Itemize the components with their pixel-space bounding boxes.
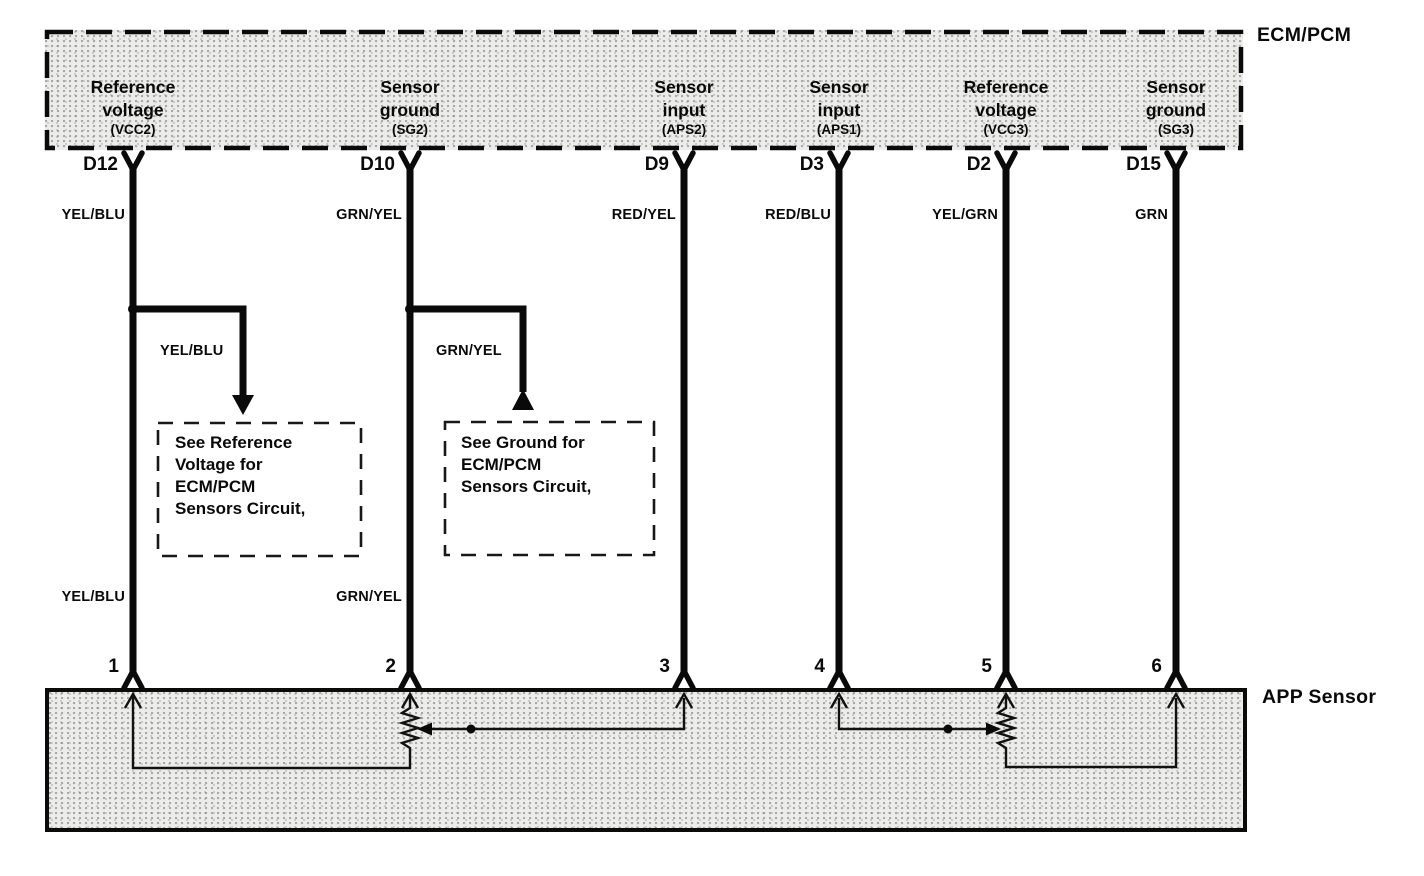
wire-color-label: GRN/YEL [436,343,502,359]
wire-column-1 [124,153,142,708]
pin-label-d9: D9 [572,154,669,176]
connector-fork-icon [1167,671,1185,688]
app-pin-number: 4 [775,656,825,678]
wire-column-3 [675,153,693,708]
circuit-line [1006,698,1176,767]
wire-column-6 [1167,153,1185,708]
app-sensor-label: APP Sensor [1262,686,1376,709]
wiring-diagram: ECM/PCM APP Sensor Reference voltage (VC… [0,0,1424,876]
terminal-aps2: Sensor input (APS2) [599,76,769,137]
connector-fork-icon [997,671,1015,688]
wire-color-label: YEL/BLU [15,207,125,223]
arrow-up-icon [512,389,534,410]
app-pin-number: 1 [69,656,119,678]
callout-line: ECM/PCM [461,454,591,476]
wiper-line [839,698,987,729]
terminal-aps1: Sensor input (APS1) [754,76,924,137]
callout-line: ECM/PCM [175,476,305,498]
wiper-line [421,698,684,729]
wiper-dot [467,725,476,734]
wire-color-label: GRN/YEL [292,207,402,223]
terminal-line: Reference [921,76,1091,99]
terminal-sub: (VCC2) [48,122,218,137]
pin-label-d10: D10 [298,154,395,176]
potentiometer-left [133,696,684,768]
pin-label-d2: D2 [894,154,991,176]
callout-ground: See Ground for ECM/PCM Sensors Circuit, [461,432,591,498]
app-pin-number: 2 [346,656,396,678]
app-pin-number: 3 [620,656,670,678]
wire-column-2 [401,153,419,708]
terminal-sub: (VCC3) [921,122,1091,137]
terminal-line: Sensor [754,76,924,99]
wire-color-label: YEL/BLU [15,589,125,605]
connector-fork-icon [401,671,419,688]
callout-line: Voltage for [175,454,305,476]
circuit-line [133,696,410,768]
wiper-dot [944,725,953,734]
app-pin-number: 5 [942,656,992,678]
ecm-pcm-label: ECM/PCM [1257,24,1351,47]
callout-line: See Reference [175,432,305,454]
wire-column-4 [830,153,848,708]
terminal-sub: (APS2) [599,122,769,137]
terminal-line: input [599,99,769,122]
terminal-line: voltage [48,99,218,122]
terminal-sub: (SG3) [1091,122,1261,137]
terminal-sub: (APS1) [754,122,924,137]
wire-column-5 [997,153,1015,708]
callout-line: Sensors Circuit, [175,498,305,520]
arrow-down-icon [232,395,254,415]
terminal-sg3: Sensor ground (SG3) [1091,76,1261,137]
app-pin-number: 6 [1112,656,1162,678]
terminal-line: Sensor [599,76,769,99]
callout-reference-voltage: See Reference Voltage for ECM/PCM Sensor… [175,432,305,520]
wiper-arrow-left-icon [417,723,432,736]
pin-label-d15: D15 [1064,154,1161,176]
terminal-line: voltage [921,99,1091,122]
branch-reference-voltage [128,304,254,415]
wire-color-label: RED/YEL [566,207,676,223]
terminal-line: ground [1091,99,1261,122]
connector-fork-icon [124,671,142,688]
terminal-line: Sensor [1091,76,1261,99]
wire-color-label: GRN/YEL [292,589,402,605]
potentiometer-right [839,696,1176,767]
terminal-line: input [754,99,924,122]
connector-fork-icon [675,671,693,688]
terminal-sg2: Sensor ground (SG2) [325,76,495,137]
wire-color-label: YEL/GRN [888,207,998,223]
terminal-sub: (SG2) [325,122,495,137]
terminal-line: ground [325,99,495,122]
wire-color-label: GRN [1058,207,1168,223]
terminal-vcc3: Reference voltage (VCC3) [921,76,1091,137]
callout-line: Sensors Circuit, [461,476,591,498]
connector-fork-icon [830,671,848,688]
terminal-vcc2: Reference voltage (VCC2) [48,76,218,137]
terminal-line: Sensor [325,76,495,99]
callout-line: See Ground for [461,432,591,454]
wire-color-label: RED/BLU [721,207,831,223]
pin-label-d12: D12 [21,154,118,176]
pin-label-d3: D3 [727,154,824,176]
wire-color-label: YEL/BLU [160,343,223,359]
terminal-line: Reference [48,76,218,99]
